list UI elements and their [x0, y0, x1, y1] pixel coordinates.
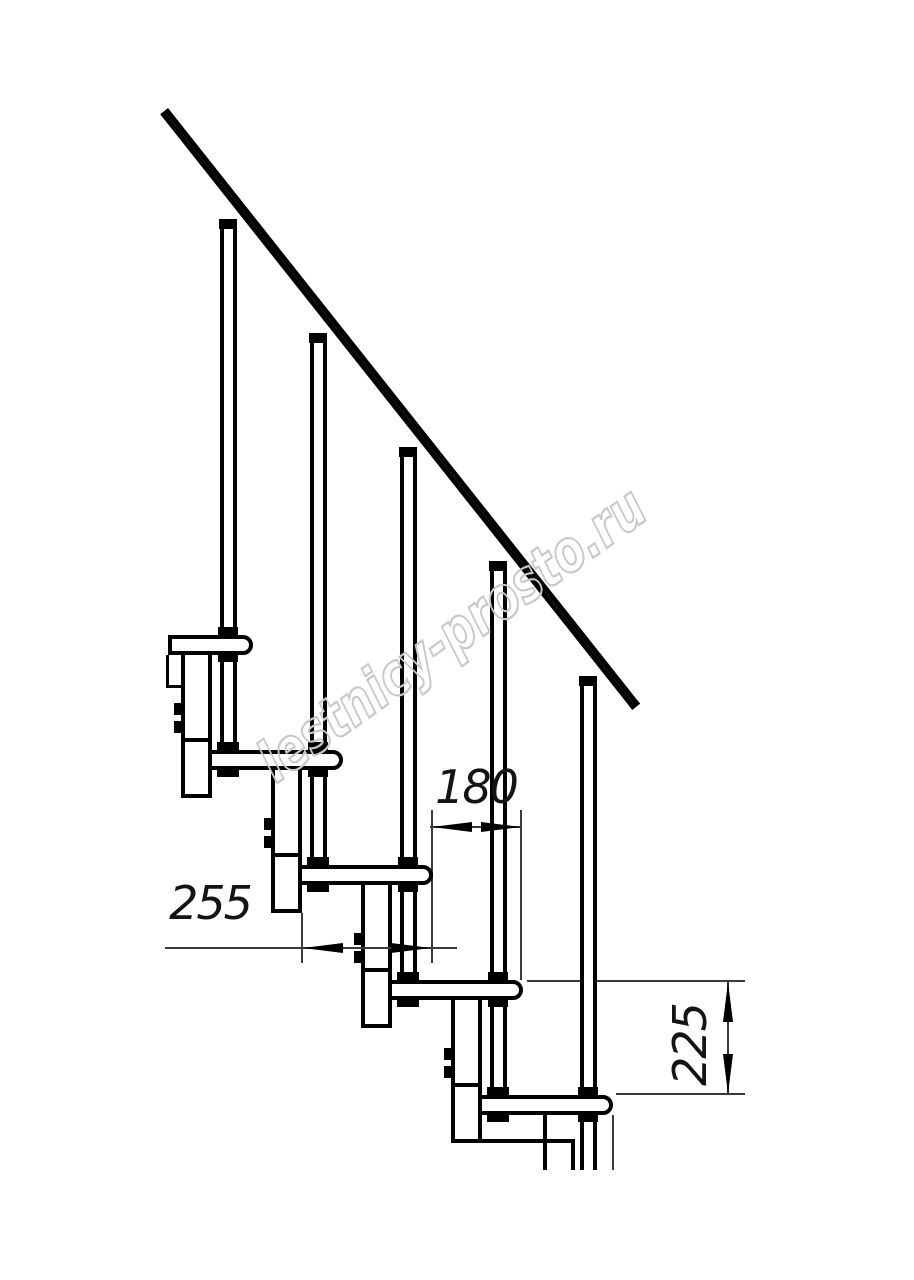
rail-connector-5	[579, 676, 597, 686]
baluster-4	[490, 565, 507, 1122]
tread-nut	[398, 857, 418, 865]
dimension-value-180: 180	[434, 764, 518, 810]
extension-line-225-top	[527, 980, 745, 982]
tread-nut	[398, 885, 418, 892]
dimension-value-225: 225	[667, 1003, 713, 1087]
dimension-value-255: 255	[168, 880, 252, 926]
arrowhead-225-top	[723, 982, 733, 1022]
arrowhead-180-right	[481, 822, 521, 832]
tread-3	[298, 865, 433, 885]
tread-nut	[218, 655, 238, 662]
support-column-4	[451, 996, 482, 1143]
extension-line-255-left	[301, 913, 303, 963]
support-column-3	[361, 881, 392, 1028]
tread-1	[168, 635, 253, 655]
top-step-bracket-horizontal	[166, 685, 181, 688]
tread-5	[478, 1095, 613, 1115]
arrowhead-180-left	[432, 822, 472, 832]
column-5-shelf-line	[478, 1139, 575, 1143]
tread-nut	[488, 972, 508, 980]
tread-5-edge-cut-line	[612, 1115, 614, 1170]
rail-connector-3	[399, 447, 417, 457]
column-divider-3	[361, 968, 392, 972]
column-bracket-3a	[354, 933, 362, 945]
column-divider-2	[271, 853, 302, 857]
tread-nut	[487, 1087, 509, 1095]
tread-nut	[308, 742, 328, 750]
tread-nut	[217, 742, 239, 750]
tread-nut	[308, 770, 328, 777]
column-5-right-edge	[571, 1139, 575, 1170]
top-step-bracket-vertical	[166, 655, 169, 688]
column-bracket-1b	[174, 721, 182, 733]
column-bracket-1a	[174, 703, 182, 715]
arrowhead-225-bottom	[723, 1054, 733, 1094]
tread-nut	[578, 1087, 598, 1095]
tread-nut	[578, 1115, 598, 1122]
baluster-1	[220, 225, 237, 777]
column-divider-4	[451, 1083, 482, 1087]
column-bracket-4b	[444, 1066, 452, 1078]
arrowhead-255-left	[303, 943, 343, 953]
tread-nut	[217, 770, 239, 777]
column-divider-1	[181, 738, 212, 742]
baluster-2	[310, 337, 327, 892]
column-bracket-2a	[264, 818, 272, 830]
column-5-left-edge	[543, 1115, 547, 1170]
arrowhead-255-right	[391, 943, 431, 953]
extension-line-180-right	[520, 810, 522, 980]
rail-connector-2	[309, 333, 327, 343]
support-column-1	[181, 651, 212, 798]
staircase-technical-drawing: 255 180 225 lestnicy-prosto.ru	[0, 0, 914, 1280]
rail-connector-4	[489, 561, 507, 571]
column-bracket-2b	[264, 836, 272, 848]
baluster-3	[400, 451, 417, 1007]
rail-connector-1	[219, 219, 237, 229]
column-bracket-3b	[354, 951, 362, 963]
tread-4	[388, 980, 523, 1000]
tread-nut	[488, 1000, 508, 1007]
tread-nut	[307, 857, 329, 865]
tread-2	[208, 750, 343, 770]
tread-nut	[218, 627, 238, 635]
column-bracket-4a	[444, 1048, 452, 1060]
support-column-2	[271, 766, 302, 913]
tread-nut	[307, 885, 329, 892]
tread-nut	[397, 1000, 419, 1007]
extension-line-shared-433	[431, 810, 433, 963]
tread-nut	[397, 972, 419, 980]
tread-nut	[487, 1115, 509, 1122]
